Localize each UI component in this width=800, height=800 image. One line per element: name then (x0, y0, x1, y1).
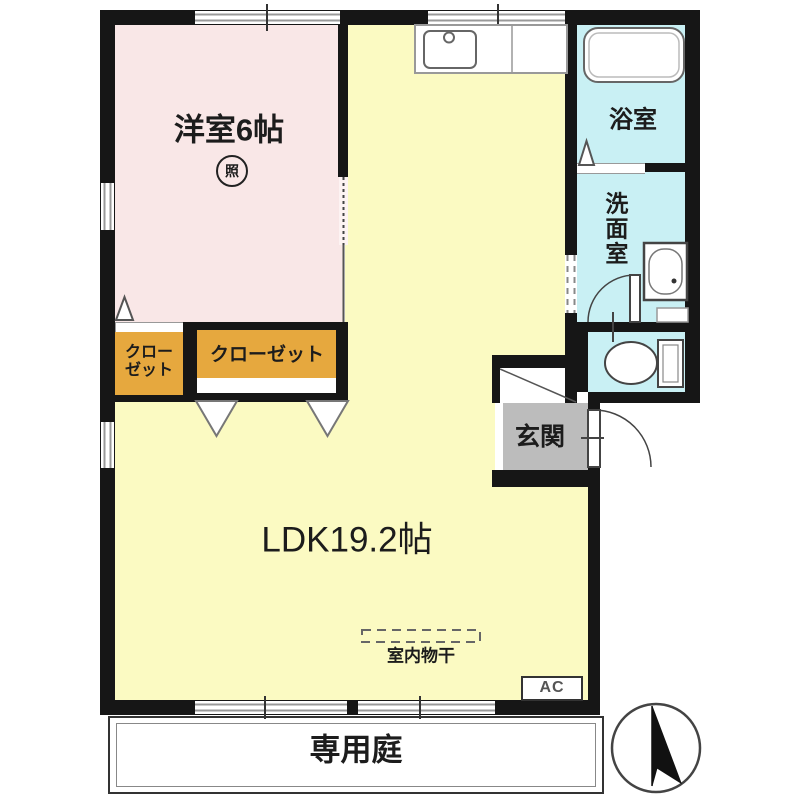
ldk-label: LDK19.2帖 (261, 520, 432, 559)
western-room-label: 洋室6帖 (174, 114, 284, 149)
closet-small-label-line2: ゼット (125, 362, 173, 380)
window-left-western (101, 183, 114, 230)
wall-washroom-bottom (577, 322, 688, 332)
wall-toilet-left (577, 332, 588, 392)
floor-plan: 洋室6帖 照 クロー ゼット クローゼット LDK19.2帖 浴室 洗面室 玄関… (0, 0, 800, 800)
wall-entrance-bottom (492, 470, 597, 487)
wall-right-upper (685, 10, 700, 403)
wall-bathroom-bottom (645, 163, 688, 172)
opening-washroom-dashed (565, 255, 577, 313)
toilet-area (588, 332, 685, 392)
wall-bottom (100, 700, 600, 715)
wall-toilet-bottom (588, 392, 700, 403)
entrance-label: 玄関 (515, 423, 565, 451)
opening-western-dashed (339, 177, 348, 245)
ldk-room-area-right (565, 487, 588, 700)
wall-right-lower (588, 465, 600, 715)
bathroom-label: 浴室 (609, 108, 657, 135)
indoor-drying-label: 室内物干 (387, 646, 455, 665)
closet-large-label: クローゼット (210, 344, 324, 365)
ac-label: AC (539, 679, 564, 697)
window-top-kitchen (428, 11, 565, 24)
wall-top (100, 10, 700, 25)
window-bottom-left (195, 701, 347, 714)
window-top-western (195, 11, 340, 24)
closet-small-label: クロー ゼット (125, 344, 173, 380)
compass-north-icon (612, 704, 700, 792)
wall-door-jamb (588, 400, 600, 412)
lighting-symbol: 照 (216, 155, 248, 187)
bathroom-area (577, 25, 685, 163)
window-left-ldk (101, 422, 114, 468)
bathroom-door-gap (577, 163, 645, 174)
entrance-step (495, 403, 503, 470)
wall-entrance-top (492, 355, 577, 368)
entrance-door (581, 410, 651, 467)
private-garden-label: 専用庭 (310, 734, 403, 769)
closet-large-door (197, 378, 336, 393)
wall-washroom-left-upper (565, 25, 577, 255)
wall-left (100, 10, 115, 715)
washroom-label: 洗面室 (601, 192, 627, 267)
window-bottom-right (358, 701, 495, 714)
lighting-symbol-text: 照 (225, 161, 239, 181)
closet-small-label-line1: クロー (125, 344, 173, 362)
closet-small-bottom-wall (115, 395, 183, 402)
wall-entrance-left (492, 368, 500, 403)
wall-western-right (338, 25, 348, 177)
washroom-area (577, 172, 685, 322)
